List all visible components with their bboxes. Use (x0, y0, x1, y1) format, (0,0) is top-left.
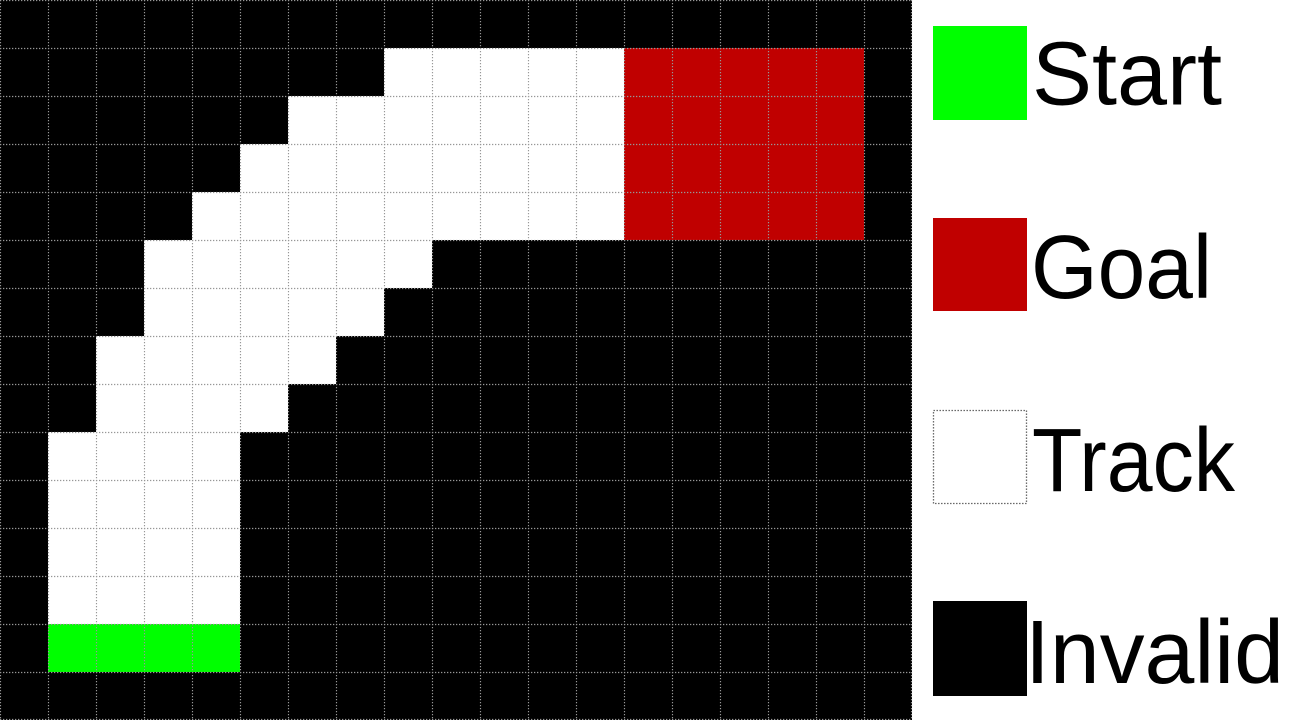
svg-text:Start: Start (1032, 25, 1222, 125)
svg-text:Track: Track (1032, 411, 1236, 511)
svg-text:Invalid: Invalid (1025, 603, 1284, 703)
svg-text:Goal: Goal (1031, 218, 1212, 318)
